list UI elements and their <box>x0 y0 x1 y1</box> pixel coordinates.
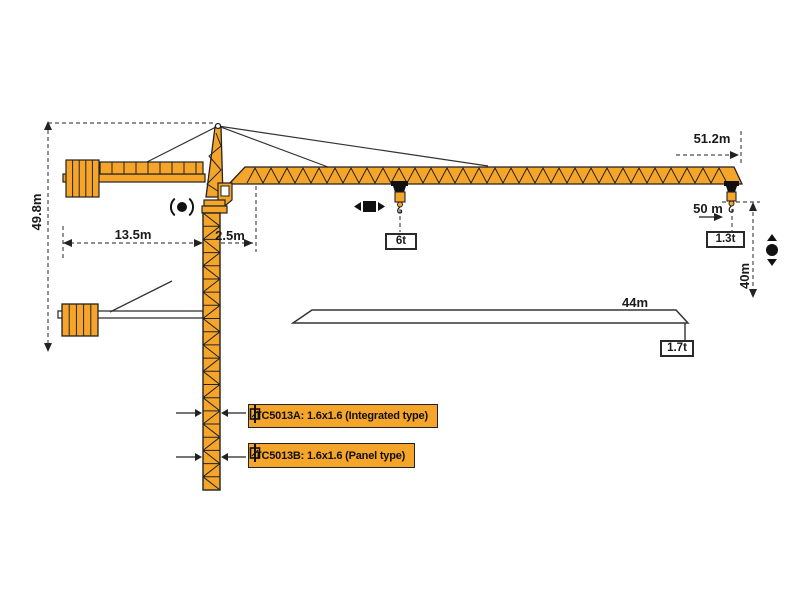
alt-jib-length-label: 44m <box>611 295 659 310</box>
mast-section-icon <box>249 444 261 462</box>
alt-jib-outline <box>293 310 688 323</box>
counter-jib <box>63 160 205 197</box>
rear-offset-label: 2.5m <box>206 228 254 243</box>
hook-height-label: 40m <box>737 248 753 304</box>
mid-hook-block <box>395 192 405 202</box>
mast-section-icon <box>249 405 261 423</box>
counterweight-block <box>66 160 99 197</box>
turntable-upper <box>204 200 225 206</box>
cab-window <box>221 186 229 196</box>
right-arrow-icon <box>730 151 739 159</box>
right-arrow-icon <box>195 453 202 461</box>
max-radius-label: 51.2m <box>684 131 740 146</box>
down-arrow-icon <box>44 343 52 352</box>
counter-jib-radius-label: 13.5m <box>105 227 161 242</box>
tip-hook-block <box>727 192 736 201</box>
variant-b-box: TC5013B: 1.6x1.6 (Panel type) <box>248 443 415 468</box>
right-arrow-icon <box>194 239 203 247</box>
apex-pin <box>216 124 221 129</box>
left-arrow-icon <box>221 409 228 417</box>
jib-chords <box>229 167 742 184</box>
alt-tip-load-box: 1.7t <box>660 340 694 357</box>
total-height-label: 49.8m <box>29 184 45 240</box>
stored-counterweight <box>62 304 98 336</box>
stored-counter-jib <box>58 281 203 336</box>
right-arrow-icon <box>195 409 202 417</box>
stored-tie-rod <box>110 281 172 312</box>
left-arrow-icon <box>63 239 72 247</box>
turntable-base <box>202 206 227 213</box>
variant-b-label: TC5013B: 1.6x1.6 (Panel type) <box>255 450 405 462</box>
crane-drawing <box>0 0 800 600</box>
up-arrow-icon <box>44 121 52 130</box>
mid-span-load-box: 6t <box>385 233 417 250</box>
hook-hoist-icon <box>766 234 778 266</box>
tower <box>202 124 232 491</box>
left-arrow-icon <box>221 453 228 461</box>
tower-crane-diagram: 49.8m 13.5m 2.5m 51.2m 50 m 40m 44m 6t 1… <box>0 0 800 600</box>
slew-rotation-icon <box>171 199 193 215</box>
trolley-travel-icon <box>354 201 385 212</box>
main-jib <box>229 167 742 184</box>
tie-rods <box>145 126 488 167</box>
variant-a-box: TC5013A: 1.6x1.6 (Integrated type) <box>248 404 438 428</box>
counter-jib-rail <box>100 162 203 174</box>
variant-a-label: TC5013A: 1.6x1.6 (Integrated type) <box>255 410 428 422</box>
tip-load-box: 1.3t <box>706 231 745 248</box>
jib-length-label: 50 m <box>684 201 732 216</box>
up-arrow-icon <box>749 202 757 211</box>
mid-trolley <box>391 181 408 213</box>
